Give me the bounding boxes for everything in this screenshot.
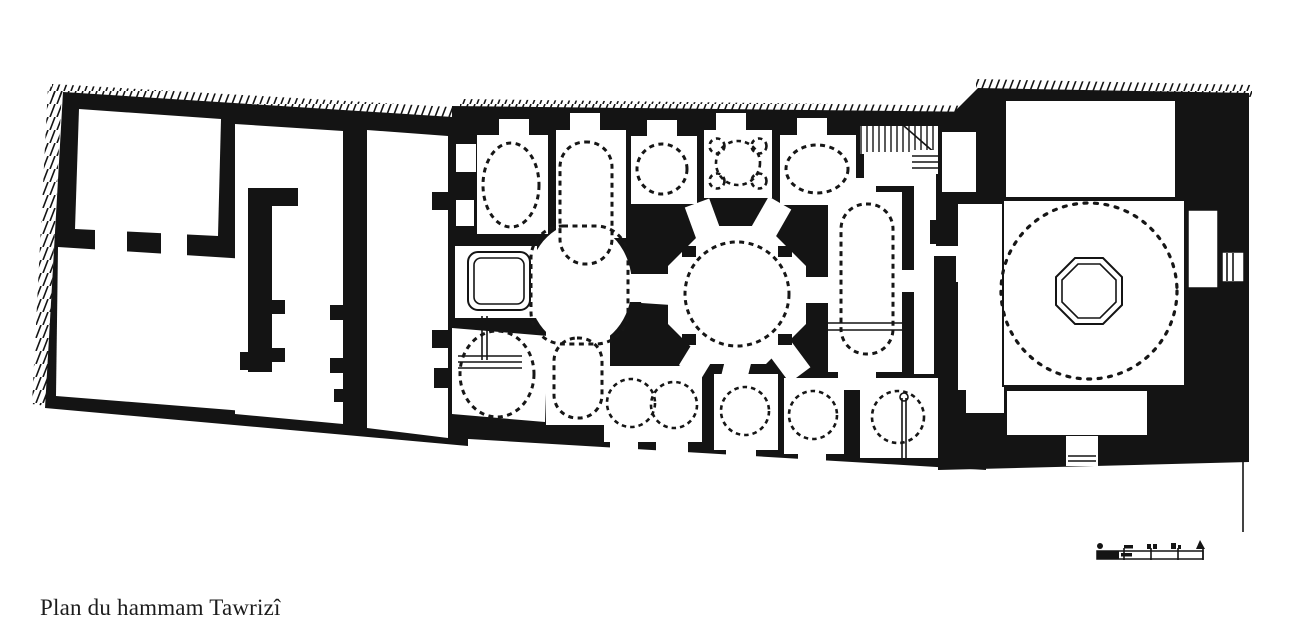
courtyard-room — [56, 247, 247, 411]
left-courtyard-block — [56, 109, 450, 438]
upper-hall — [1006, 101, 1175, 197]
bench-room — [1006, 390, 1148, 436]
scale-bar — [1097, 540, 1205, 560]
wall-opening — [95, 226, 127, 252]
figure-caption: Plan du hammam Tawrizî source: Ecochard/… — [40, 533, 365, 629]
side-iwan — [1188, 210, 1218, 288]
scanned-plan-page: Plan du hammam Tawrizî source: Ecochard/… — [0, 0, 1299, 629]
caption-title: Plan du hammam Tawrizî — [40, 593, 365, 623]
reception-room — [75, 109, 221, 236]
entrance-corridor — [367, 130, 448, 438]
wall-opening — [161, 231, 187, 257]
south-door — [1066, 436, 1098, 466]
